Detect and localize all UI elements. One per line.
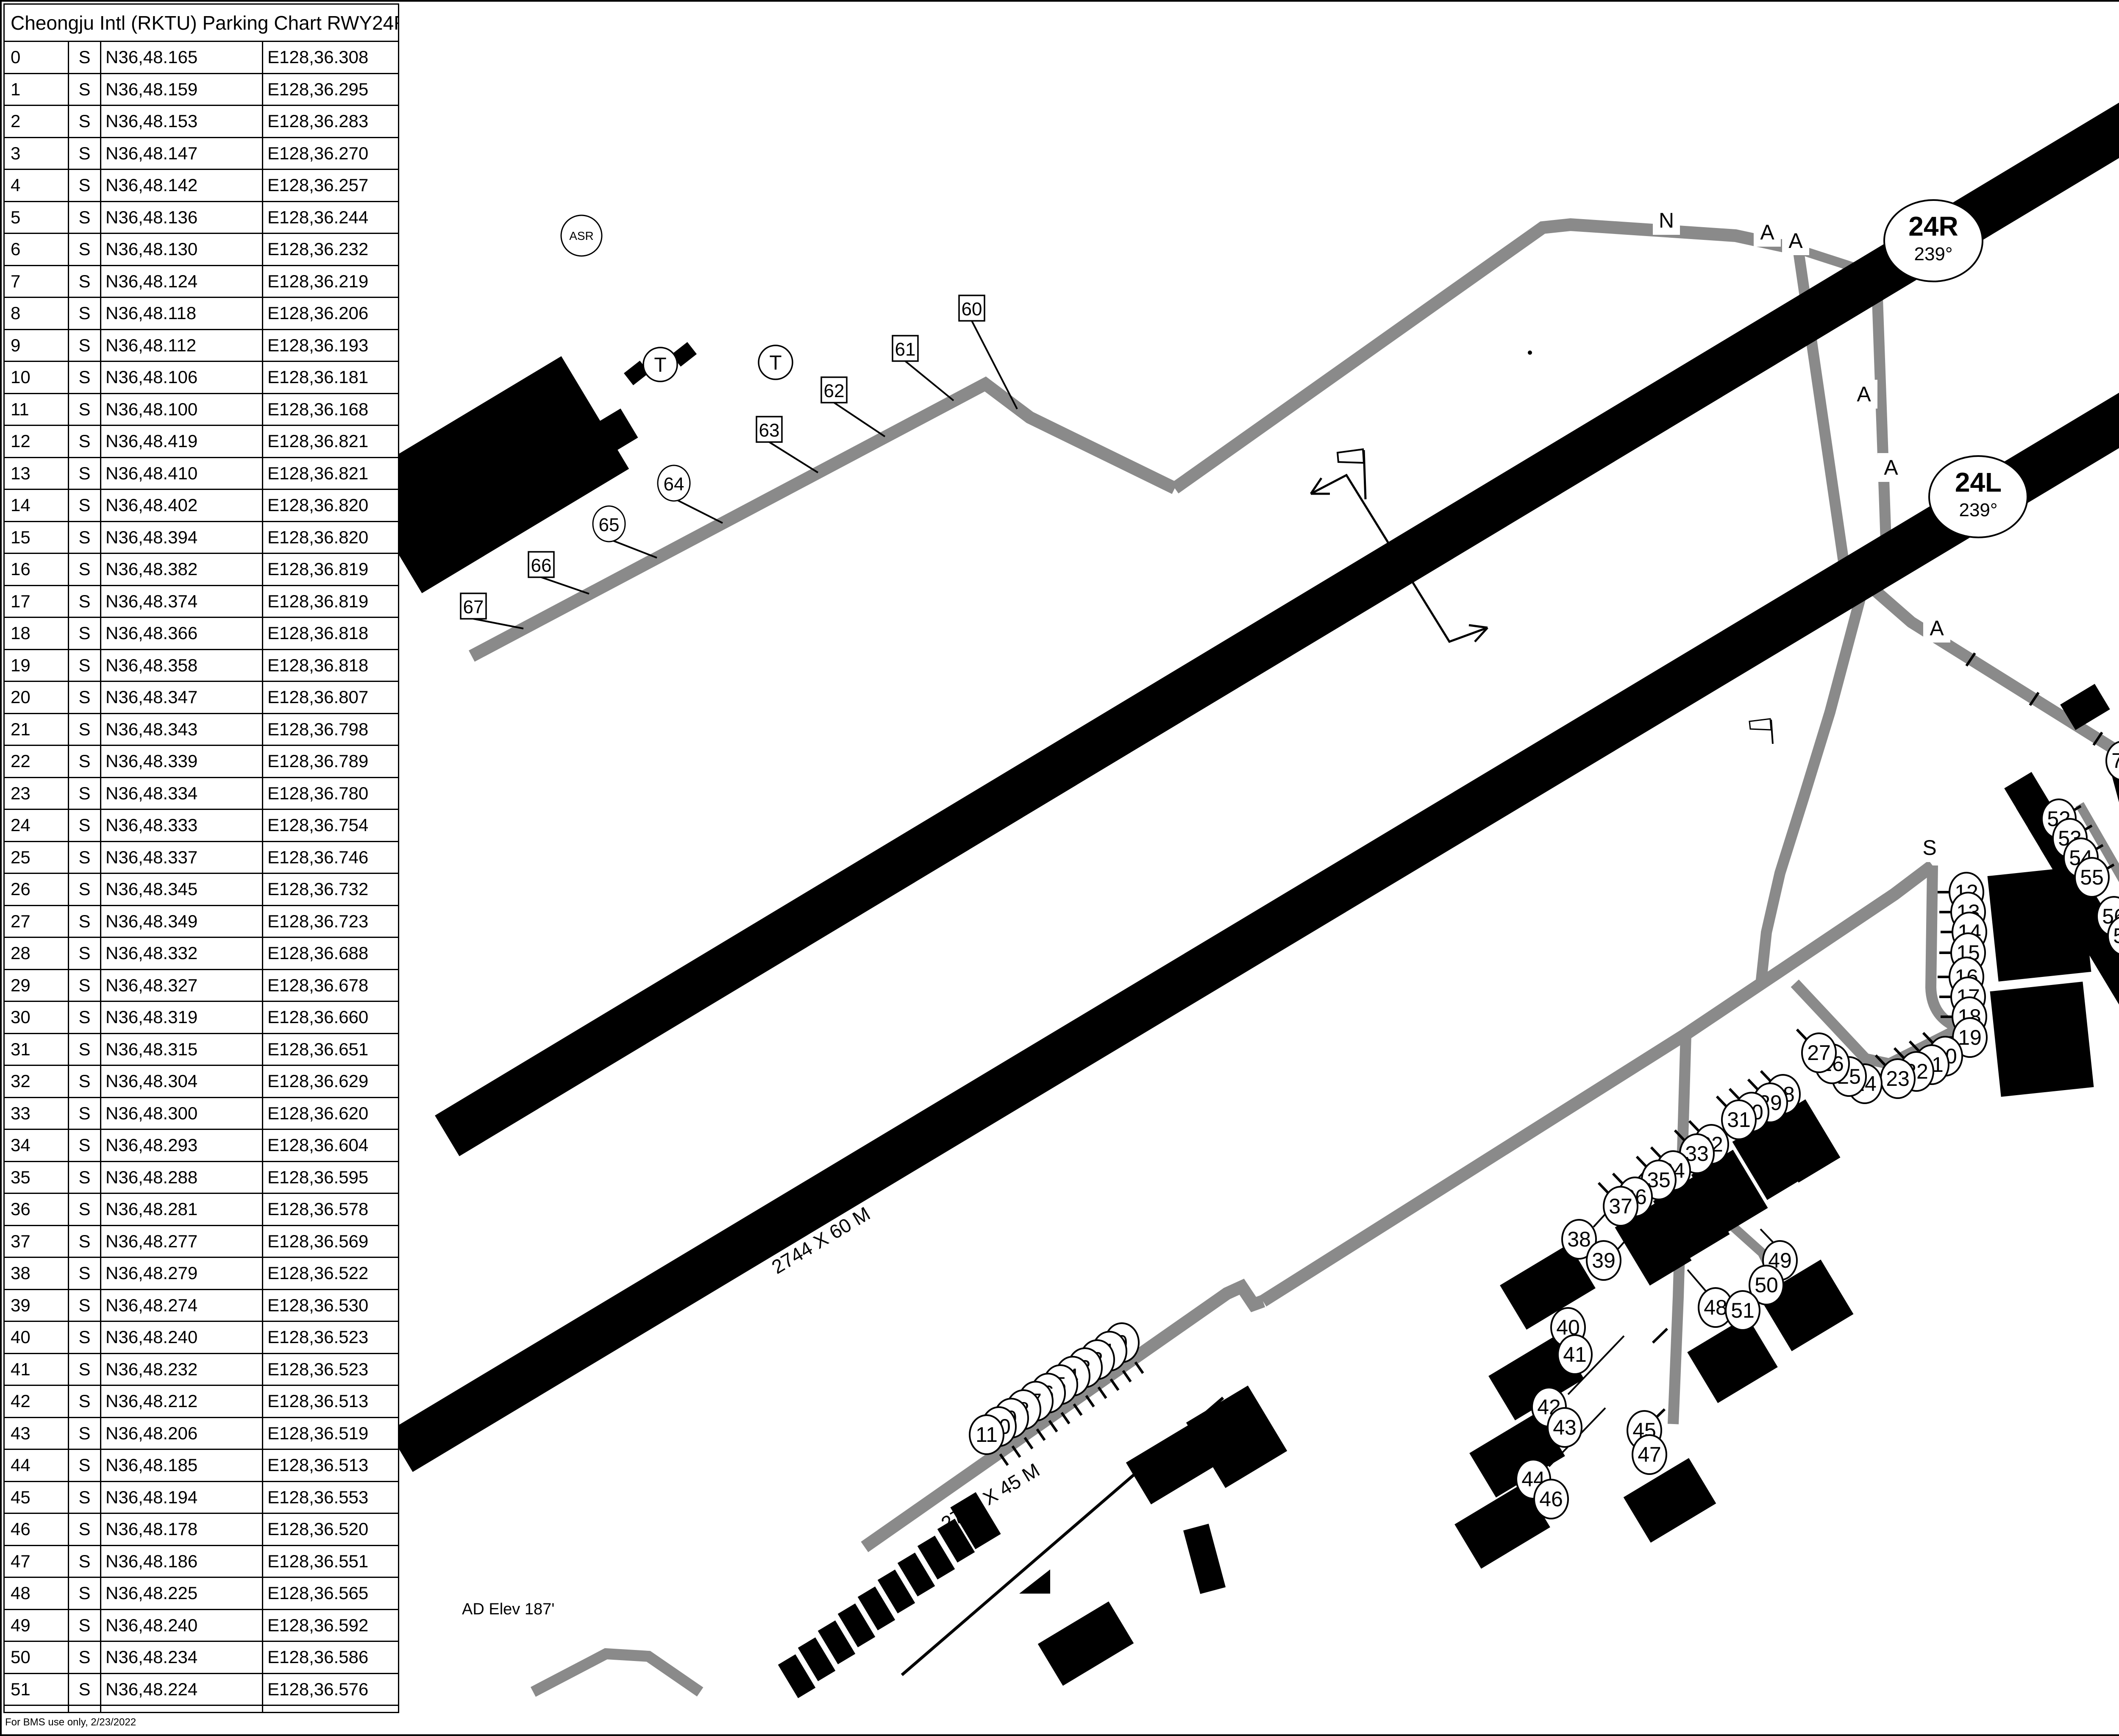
longitude-cell: E128,36.820 <box>263 522 398 554</box>
status-cell: S <box>69 1546 101 1578</box>
windsock-icon <box>1338 449 1365 499</box>
table-row: 20SN36,48.347E128,36.807 <box>5 682 398 714</box>
parking-spot-63: 63 <box>756 417 782 442</box>
longitude-cell: E128,36.678 <box>263 970 398 1002</box>
parking-spot-39: 39 <box>1587 1241 1621 1280</box>
table-row: 41SN36,48.232E128,36.523 <box>5 1354 398 1386</box>
table-row: 9SN36,48.112E128,36.193 <box>5 330 398 362</box>
longitude-cell: E128,36.746 <box>263 842 398 874</box>
table-row: 33SN36,48.300E128,36.620 <box>5 1098 398 1130</box>
latitude-cell: N36,48.234 <box>101 1642 263 1674</box>
status-cell: S <box>69 1354 101 1386</box>
longitude-cell: E128,36.819 <box>263 554 398 586</box>
spot-number-cell: 1 <box>5 74 69 106</box>
latitude-cell: N36,48.178 <box>101 1514 263 1546</box>
latitude-cell: N36,48.293 <box>101 1130 263 1162</box>
spot-number-cell: 51 <box>5 1674 69 1706</box>
taxiway-letter-label: N <box>1659 209 1674 232</box>
table-row: 3SN36,48.147E128,36.270 <box>5 138 398 170</box>
parking-spot-number: 67 <box>463 597 484 618</box>
table-row: 32SN36,48.304E128,36.629 <box>5 1066 398 1098</box>
latitude-cell: N36,48.332 <box>101 938 263 970</box>
spot-number-cell: 47 <box>5 1546 69 1578</box>
page-title: Cheongju Intl (RKTU) Parking Chart RWY24… <box>5 5 398 42</box>
table-row: 39SN36,48.274E128,36.530 <box>5 1290 398 1322</box>
parking-spot-number: 27 <box>1807 1041 1831 1065</box>
asr-label: ASR <box>569 229 594 242</box>
latitude-cell: N36,48.224 <box>101 1674 263 1706</box>
latitude-cell: N36,48.345 <box>101 874 263 906</box>
parking-spot-number: 71 <box>2111 749 2119 773</box>
spot-number-cell: 15 <box>5 522 69 554</box>
longitude-cell: E128,36.821 <box>263 458 398 490</box>
building <box>1990 982 2094 1097</box>
table-row: 1SN36,48.159E128,36.295 <box>5 74 398 106</box>
latitude-cell: N36,48.118 <box>101 298 263 330</box>
table-row: 23SN36,48.334E128,36.780 <box>5 778 398 810</box>
parking-spot-number: 23 <box>1886 1067 1910 1091</box>
latitude-cell: N36,48.304 <box>101 1066 263 1098</box>
status-cell: S <box>69 74 101 106</box>
table-row: 44SN36,48.185E128,36.513 <box>5 1450 398 1482</box>
latitude-cell: N36,48.130 <box>101 234 263 266</box>
taxiway-letter-S: S <box>1916 833 1943 862</box>
parking-spot-51: 51 <box>1726 1291 1760 1330</box>
parking-spot-number: 61 <box>895 339 916 360</box>
table-row: 10SN36,48.106E128,36.181 <box>5 362 398 394</box>
longitude-cell: E128,36.553 <box>263 1482 398 1514</box>
longitude-cell: E128,36.732 <box>263 874 398 906</box>
spot-number-cell: 38 <box>5 1258 69 1290</box>
longitude-cell: E128,36.821 <box>263 426 398 458</box>
spot-number-cell: 19 <box>5 650 69 682</box>
parking-spot-number: 39 <box>1592 1249 1616 1272</box>
t-markers: TT <box>643 345 793 381</box>
status-cell: S <box>69 426 101 458</box>
spot-number-cell: 28 <box>5 938 69 970</box>
parking-spot-64: 64 <box>658 465 690 501</box>
latitude-cell: N36,48.347 <box>101 682 263 714</box>
longitude-cell: E128,36.308 <box>263 42 398 74</box>
spot-number-cell: 23 <box>5 778 69 810</box>
spot-number-cell: 4 <box>5 170 69 202</box>
spot-number-cell: 21 <box>5 714 69 746</box>
status-cell: S <box>69 842 101 874</box>
parking-spot-number: 64 <box>664 474 684 495</box>
latitude-cell: N36,48.185 <box>101 1450 263 1482</box>
latitude-cell: N36,48.419 <box>101 426 263 458</box>
spot-number-cell: 32 <box>5 1066 69 1098</box>
spot-number-cell: 0 <box>5 42 69 74</box>
latitude-cell: N36,48.240 <box>101 1322 263 1354</box>
parking-spot-number: 38 <box>1567 1227 1591 1251</box>
latitude-cell: N36,48.279 <box>101 1258 263 1290</box>
longitude-cell: E128,36.206 <box>263 298 398 330</box>
status-cell: S <box>69 938 101 970</box>
longitude-cell: E128,36.780 <box>263 778 398 810</box>
table-row: 29SN36,48.327E128,36.678 <box>5 970 398 1002</box>
parking-spot-number: 11 <box>976 1423 998 1447</box>
longitude-cell: E128,36.519 <box>263 1418 398 1450</box>
spot-number-cell: 49 <box>5 1610 69 1642</box>
status-cell: S <box>69 1322 101 1354</box>
status-cell: S <box>69 1610 101 1642</box>
latitude-cell: N36,48.288 <box>101 1162 263 1194</box>
spot-number-cell: 52 <box>5 1706 69 1713</box>
status-cell: S <box>69 490 101 522</box>
longitude-cell: E128,36.789 <box>263 746 398 778</box>
spot-number-cell: 42 <box>5 1386 69 1418</box>
status-cell: S <box>69 234 101 266</box>
status-cell: S <box>69 1482 101 1514</box>
table-row: 14SN36,48.402E128,36.820 <box>5 490 398 522</box>
longitude-cell: E128,36.820 <box>263 490 398 522</box>
status-cell: S <box>69 1418 101 1450</box>
parking-spot-number: 63 <box>759 420 780 441</box>
latitude-cell: N36,48.300 <box>101 1098 263 1130</box>
spot-number-cell: 41 <box>5 1354 69 1386</box>
parking-spot-number: 55 <box>2080 865 2104 889</box>
status-cell: S <box>69 874 101 906</box>
table-row: 43SN36,48.206E128,36.519 <box>5 1418 398 1450</box>
longitude-cell: E128,36.168 <box>263 394 398 426</box>
status-cell: S <box>69 138 101 170</box>
spot-number-cell: 43 <box>5 1418 69 1450</box>
status-cell: S <box>69 1066 101 1098</box>
longitude-cell: E128,36.798 <box>263 714 398 746</box>
table-row: 40SN36,48.240E128,36.523 <box>5 1322 398 1354</box>
status-cell: S <box>69 906 101 938</box>
latitude-cell: N36,48.142 <box>101 170 263 202</box>
longitude-cell: E128,36.244 <box>263 202 398 234</box>
longitude-cell: E128,36.295 <box>263 74 398 106</box>
parking-spot-55: 55 <box>2075 858 2114 897</box>
status-cell: S <box>69 1098 101 1130</box>
table-row: 13SN36,48.410E128,36.821 <box>5 458 398 490</box>
parking-spot-number: 46 <box>1539 1487 1563 1511</box>
runways <box>400 23 2119 1452</box>
spot-number-cell: 16 <box>5 554 69 586</box>
table-row: 6SN36,48.130E128,36.232 <box>5 234 398 266</box>
longitude-cell: E128,36.754 <box>263 810 398 842</box>
spot-number-cell: 31 <box>5 1034 69 1066</box>
elevation-note: AD Elev 187' <box>462 1600 554 1619</box>
parking-spot-number: 48 <box>1704 1296 1727 1319</box>
spot-number-cell: 2 <box>5 106 69 138</box>
spot-number-cell: 5 <box>5 202 69 234</box>
runway-id-markers: 24R 239° 24L 239° <box>1884 200 2027 537</box>
parking-spot-number: 31 <box>1727 1108 1751 1132</box>
longitude-cell: E128,36.551 <box>263 1546 398 1578</box>
parking-spot-71: 71 <box>2106 727 2119 780</box>
taxiway-letter-A: A <box>1877 453 1905 482</box>
latitude-cell: N36,48.106 <box>101 362 263 394</box>
longitude-cell: E128,36.270 <box>263 138 398 170</box>
status-cell: S <box>69 1258 101 1290</box>
latitude-cell: N36,48.349 <box>101 906 263 938</box>
table-row: 21SN36,48.343E128,36.798 <box>5 714 398 746</box>
runway-24R-id: 24R <box>1908 211 1958 242</box>
spot-number-cell: 44 <box>5 1450 69 1482</box>
table-row: 25SN36,48.337E128,36.746 <box>5 842 398 874</box>
footer-note: For BMS use only, 2/23/2022 <box>5 1717 136 1728</box>
spot-number-cell: 35 <box>5 1162 69 1194</box>
status-cell: S <box>69 1034 101 1066</box>
spot-number-cell: 7 <box>5 266 69 298</box>
table-row: 47SN36,48.186E128,36.551 <box>5 1546 398 1578</box>
status-cell: S <box>69 970 101 1002</box>
status-cell: S <box>69 1290 101 1322</box>
asr-marker: ASR <box>561 215 602 256</box>
spot-number-cell: 18 <box>5 618 69 650</box>
parking-spot-41: 41 <box>1558 1335 1592 1374</box>
t-marker-label: T <box>654 354 666 376</box>
longitude-cell: E128,36.578 <box>263 1194 398 1226</box>
runway-24L-id: 24L <box>1955 467 2002 498</box>
table-rows: 0SN36,48.165E128,36.3081SN36,48.159E128,… <box>5 42 398 1713</box>
table-row: 4SN36,48.142E128,36.257 <box>5 170 398 202</box>
status-cell: S <box>69 298 101 330</box>
latitude-cell: N36,48.159 <box>101 74 263 106</box>
taxiway-letter-label: S <box>1922 836 1936 860</box>
latitude-cell: N36,48.186 <box>101 1546 263 1578</box>
spot-number-cell: 36 <box>5 1194 69 1226</box>
table-row: 18SN36,48.366E128,36.818 <box>5 618 398 650</box>
longitude-cell: E128,36.688 <box>263 938 398 970</box>
longitude-cell: E128,36.219 <box>263 266 398 298</box>
table-row: 5SN36,48.136E128,36.244 <box>5 202 398 234</box>
taxiway-letter-label: A <box>1884 456 1898 479</box>
spot-number-cell: 3 <box>5 138 69 170</box>
longitude-cell: E128,36.576 <box>263 1674 398 1706</box>
status-cell: S <box>69 1674 101 1706</box>
latitude-cell: N36,48.147 <box>101 138 263 170</box>
t-taxiway-marker: T <box>759 345 793 379</box>
table-row: 22SN36,48.339E128,36.789 <box>5 746 398 778</box>
parking-spot-number: 47 <box>1638 1443 1661 1466</box>
spot-number-cell: 9 <box>5 330 69 362</box>
latitude-cell: N36,48.327 <box>101 970 263 1002</box>
latitude-cell: N36,48.124 <box>101 266 263 298</box>
status-cell: S <box>69 746 101 778</box>
taxiway-letter-label: A <box>1760 220 1774 244</box>
status-cell: S <box>69 522 101 554</box>
longitude-cell: E128,36.651 <box>263 1034 398 1066</box>
table-row: 11SN36,48.100E128,36.168 <box>5 394 398 426</box>
longitude-cell: E128,36.881 <box>263 1706 398 1713</box>
table-row: 46SN36,48.178E128,36.520 <box>5 1514 398 1546</box>
table-row: 34SN36,48.293E128,36.604 <box>5 1130 398 1162</box>
longitude-cell: E128,36.283 <box>263 106 398 138</box>
latitude-cell: N36,48.410 <box>101 458 263 490</box>
status-cell: S <box>69 42 101 74</box>
table-row: 28SN36,48.332E128,36.688 <box>5 938 398 970</box>
status-cell: S <box>69 1002 101 1034</box>
latitude-cell: N36,48.212 <box>101 1386 263 1418</box>
status-cell: S <box>69 778 101 810</box>
longitude-cell: E128,36.193 <box>263 330 398 362</box>
table-row: 17SN36,48.374E128,36.819 <box>5 586 398 618</box>
windsock-icon <box>1749 719 1773 744</box>
table-row: 35SN36,48.288E128,36.595 <box>5 1162 398 1194</box>
spot-number-cell: 40 <box>5 1322 69 1354</box>
latitude-cell: N36,48.153 <box>101 106 263 138</box>
table-row: 15SN36,48.394E128,36.820 <box>5 522 398 554</box>
status-cell: S <box>69 650 101 682</box>
status-cell: S <box>69 618 101 650</box>
latitude-cell: N36,48.366 <box>101 618 263 650</box>
spot-number-cell: 29 <box>5 970 69 1002</box>
latitude-cell: N36,48.343 <box>101 714 263 746</box>
taxiway-letter-A: A <box>1754 218 1781 247</box>
longitude-cell: E128,36.818 <box>263 618 398 650</box>
status-cell: S <box>69 1194 101 1226</box>
spot-number-cell: 6 <box>5 234 69 266</box>
table-row: 30SN36,48.319E128,36.660 <box>5 1002 398 1034</box>
parking-spot-number: 50 <box>1755 1273 1778 1297</box>
longitude-cell: E128,36.530 <box>263 1290 398 1322</box>
status-cell: S <box>69 266 101 298</box>
latitude-cell: N36,48.206 <box>101 1418 263 1450</box>
parking-spot-number: 62 <box>824 381 845 401</box>
table-row: 51SN36,48.224E128,36.576 <box>5 1674 398 1706</box>
spot-number-cell: 20 <box>5 682 69 714</box>
parking-spot-61: 61 <box>893 336 918 361</box>
spot-number-cell: 14 <box>5 490 69 522</box>
parking-spot-number: 65 <box>599 515 620 535</box>
latitude-cell: N36,48.240 <box>101 1610 263 1642</box>
table-row: 38SN36,48.279E128,36.522 <box>5 1258 398 1290</box>
longitude-cell: E128,36.181 <box>263 362 398 394</box>
spot-number-cell: 39 <box>5 1290 69 1322</box>
parking-coordinates-table: Cheongju Intl (RKTU) Parking Chart RWY24… <box>3 3 399 1713</box>
building-triangle <box>1019 1569 1050 1594</box>
status-cell: S <box>69 106 101 138</box>
latitude-cell: N36,48.382 <box>101 554 263 586</box>
spot-number-cell: 22 <box>5 746 69 778</box>
latitude-cell: N36,48.402 <box>101 490 263 522</box>
spot-number-cell: 12 <box>5 426 69 458</box>
status-cell: S <box>69 586 101 618</box>
status-cell: S <box>69 1226 101 1258</box>
status-cell: S <box>69 1162 101 1194</box>
parking-spot-number: 60 <box>962 299 982 320</box>
longitude-cell: E128,36.595 <box>263 1162 398 1194</box>
parking-spot-66: 66 <box>528 552 554 577</box>
longitude-cell: E128,36.620 <box>263 1098 398 1130</box>
spot-number-cell: 11 <box>5 394 69 426</box>
taxiway-bottom-hump <box>533 1654 700 1692</box>
spot-number-cell: 24 <box>5 810 69 842</box>
table-row: 37SN36,48.277E128,36.569 <box>5 1226 398 1258</box>
spot-number-cell: 48 <box>5 1578 69 1610</box>
t-marker-label: T <box>769 352 781 374</box>
parking-spot-number: 37 <box>1609 1194 1632 1218</box>
latitude-cell: N36,48.225 <box>101 1578 263 1610</box>
spot-number-cell: 25 <box>5 842 69 874</box>
building <box>1624 1458 1716 1543</box>
taxiway-letter-A: A <box>1923 614 1950 643</box>
status-cell: S <box>69 362 101 394</box>
latitude-cell: N36,48.274 <box>101 1290 263 1322</box>
table-row: 50SN36,48.234E128,36.586 <box>5 1642 398 1674</box>
latitude-cell: N36,48.315 <box>101 1034 263 1066</box>
longitude-cell: E128,36.629 <box>263 1066 398 1098</box>
table-row: 31SN36,48.315E128,36.651 <box>5 1034 398 1066</box>
spot-number-cell: 8 <box>5 298 69 330</box>
runway-24L-heading: 239° <box>1959 500 1997 520</box>
taxiway-letter-label: A <box>1788 229 1803 253</box>
taxiway-letter-A: A <box>1850 380 1877 409</box>
table-row: 0SN36,48.165E128,36.308 <box>5 42 398 74</box>
building <box>1687 1316 1778 1403</box>
status-cell: S <box>69 202 101 234</box>
longitude-cell: E128,36.807 <box>263 682 398 714</box>
taxiway-A2 <box>1877 275 1887 565</box>
table-row: 36SN36,48.281E128,36.578 <box>5 1194 398 1226</box>
t-taxiway-marker: T <box>643 348 677 381</box>
parking-spot-number: 51 <box>1731 1299 1755 1322</box>
spot-number-cell: 37 <box>5 1226 69 1258</box>
parking-spot-62: 62 <box>821 377 847 403</box>
taxiway-letter-A: A <box>1782 226 1809 255</box>
table-row: 16SN36,48.382E128,36.819 <box>5 554 398 586</box>
latitude-cell: N36,48.165 <box>101 42 263 74</box>
building <box>1038 1601 1134 1686</box>
latitude-cell: N36,48.112 <box>101 330 263 362</box>
status-cell: S <box>69 1642 101 1674</box>
taxiway-letter-label: A <box>1930 616 1944 640</box>
latitude-cell: N36,48.277 <box>101 1226 263 1258</box>
parking-spot-27: 27 <box>1797 1029 1836 1072</box>
table-row: 45SN36,48.194E128,36.553 <box>5 1482 398 1514</box>
status-cell: S <box>69 1578 101 1610</box>
latitude-cell: N36,48.100 <box>101 394 263 426</box>
longitude-cell: E128,36.520 <box>263 1514 398 1546</box>
longitude-cell: E128,36.592 <box>263 1610 398 1642</box>
status-cell: S <box>69 1514 101 1546</box>
table-row: 49SN36,48.240E128,36.592 <box>5 1610 398 1642</box>
latitude-cell: N36,48.445 <box>101 1706 263 1713</box>
latitude-cell: N36,48.232 <box>101 1354 263 1386</box>
spot-number-cell: 17 <box>5 586 69 618</box>
latitude-cell: N36,48.339 <box>101 746 263 778</box>
status-cell: S <box>69 1450 101 1482</box>
spot-number-cell: 10 <box>5 362 69 394</box>
status-cell: S <box>69 330 101 362</box>
table-row: 24SN36,48.333E128,36.754 <box>5 810 398 842</box>
spot-number-cell: 27 <box>5 906 69 938</box>
spot-number-cell: 50 <box>5 1642 69 1674</box>
longitude-cell: E128,36.586 <box>263 1642 398 1674</box>
latitude-cell: N36,48.136 <box>101 202 263 234</box>
table-row: 7SN36,48.124E128,36.219 <box>5 266 398 298</box>
latitude-cell: N36,48.374 <box>101 586 263 618</box>
runway-24R-marker: 24R 239° <box>1884 200 1983 281</box>
longitude-cell: E128,36.513 <box>263 1450 398 1482</box>
runway-24L-marker: 24L 239° <box>1929 456 2027 537</box>
latitude-cell: N36,48.194 <box>101 1482 263 1514</box>
longitude-cell: E128,36.818 <box>263 650 398 682</box>
latitude-cell: N36,48.333 <box>101 810 263 842</box>
runway-24R-heading: 239° <box>1914 244 1952 264</box>
table-row: 12SN36,48.419E128,36.821 <box>5 426 398 458</box>
spot-number-cell: 45 <box>5 1482 69 1514</box>
parking-spot-number: 41 <box>1563 1343 1587 1366</box>
table-row: 52SN36,48.445E128,36.881 <box>5 1706 398 1713</box>
spot-number-cell: 26 <box>5 874 69 906</box>
status-cell: S <box>69 394 101 426</box>
